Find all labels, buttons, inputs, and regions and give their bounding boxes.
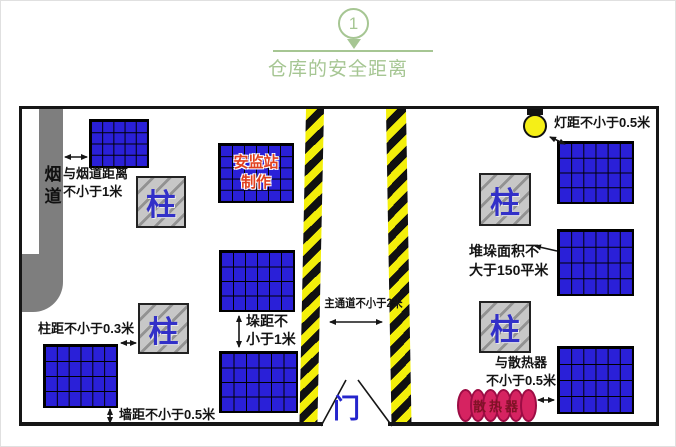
door-label: 门: [333, 387, 360, 426]
stack-area-arrow: [535, 246, 557, 251]
badge-pointer-icon: [347, 39, 361, 49]
lamp-distance-arrow: [550, 137, 565, 144]
header-divider: [273, 50, 433, 52]
door-line-right: [358, 380, 392, 426]
header: 1 仓库的安全距离: [1, 1, 675, 101]
annotation-arrows: [22, 109, 656, 431]
warehouse-diagram: 烟道 安监站 制作 柱 柱 柱 柱: [19, 106, 659, 426]
section-number-badge: 1: [338, 8, 369, 39]
section-number: 1: [349, 14, 358, 34]
page-title: 仓库的安全距离: [1, 54, 675, 81]
infographic-page: 1 仓库的安全距离 烟道 安监站 制作 柱: [0, 0, 676, 447]
